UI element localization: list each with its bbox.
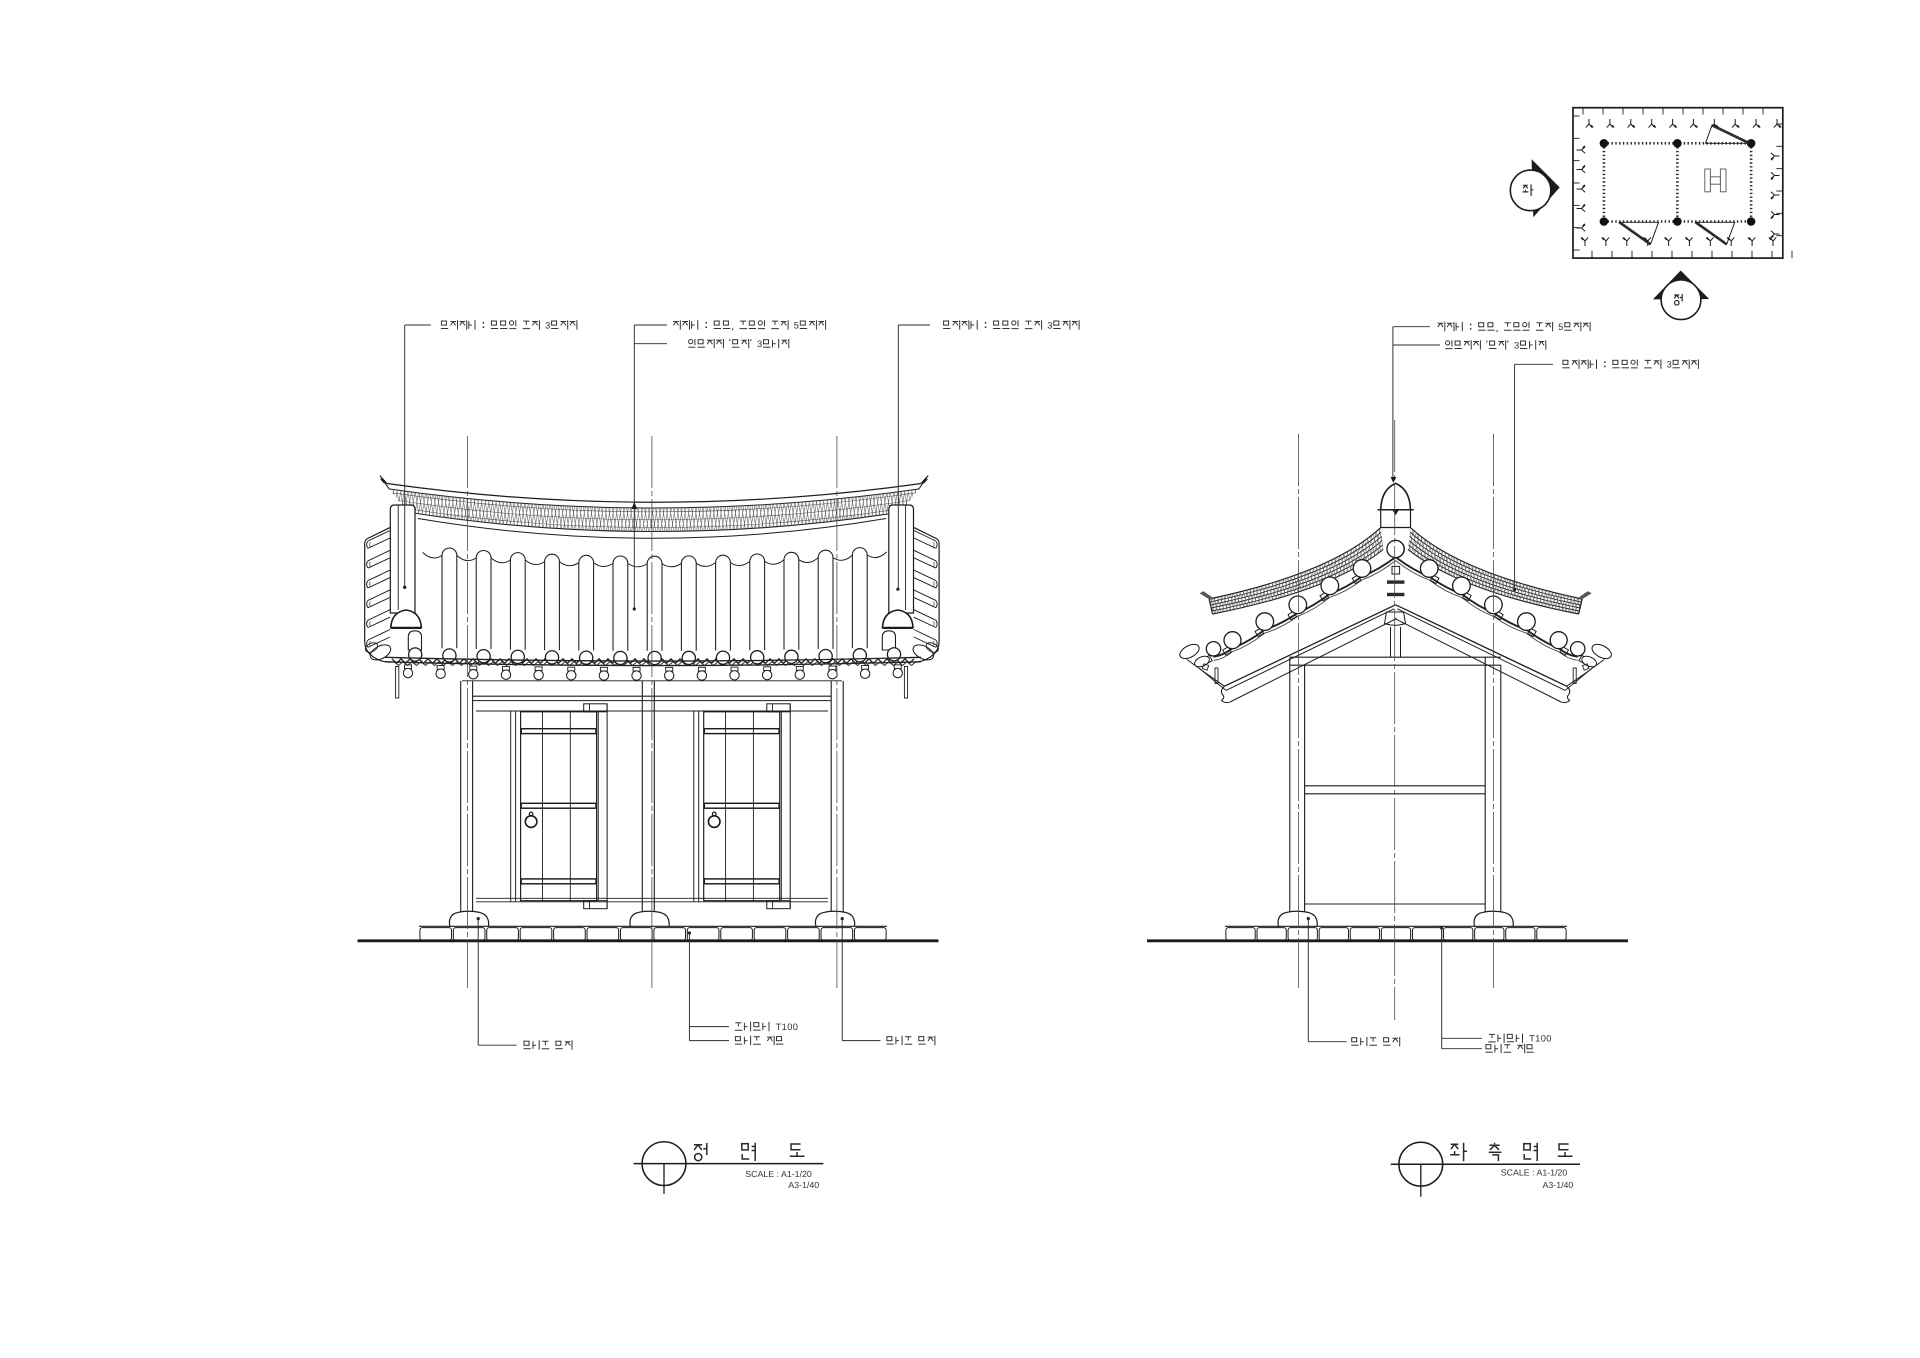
- svg-text:5: 5: [1558, 322, 1563, 332]
- svg-text:1: 1: [1535, 1034, 1540, 1044]
- svg-text:SCALE : A1-1/20: SCALE : A1-1/20: [1501, 1168, 1568, 1178]
- svg-text:5: 5: [794, 320, 799, 330]
- svg-text:0: 0: [793, 1022, 798, 1032]
- svg-text:1: 1: [782, 1022, 787, 1032]
- svg-text:A3-1/40: A3-1/40: [788, 1180, 819, 1190]
- svg-text:0: 0: [1546, 1034, 1551, 1044]
- svg-text:0: 0: [787, 1022, 792, 1032]
- svg-text:3: 3: [1667, 360, 1672, 370]
- svg-text:3: 3: [757, 339, 762, 349]
- svg-text:3: 3: [1514, 340, 1519, 350]
- svg-text:0: 0: [1541, 1034, 1546, 1044]
- svg-text:A3-1/40: A3-1/40: [1543, 1180, 1574, 1190]
- svg-text:SCALE : A1-1/20: SCALE : A1-1/20: [745, 1169, 812, 1179]
- svg-text:3: 3: [1047, 320, 1052, 330]
- svg-text:3: 3: [545, 320, 550, 330]
